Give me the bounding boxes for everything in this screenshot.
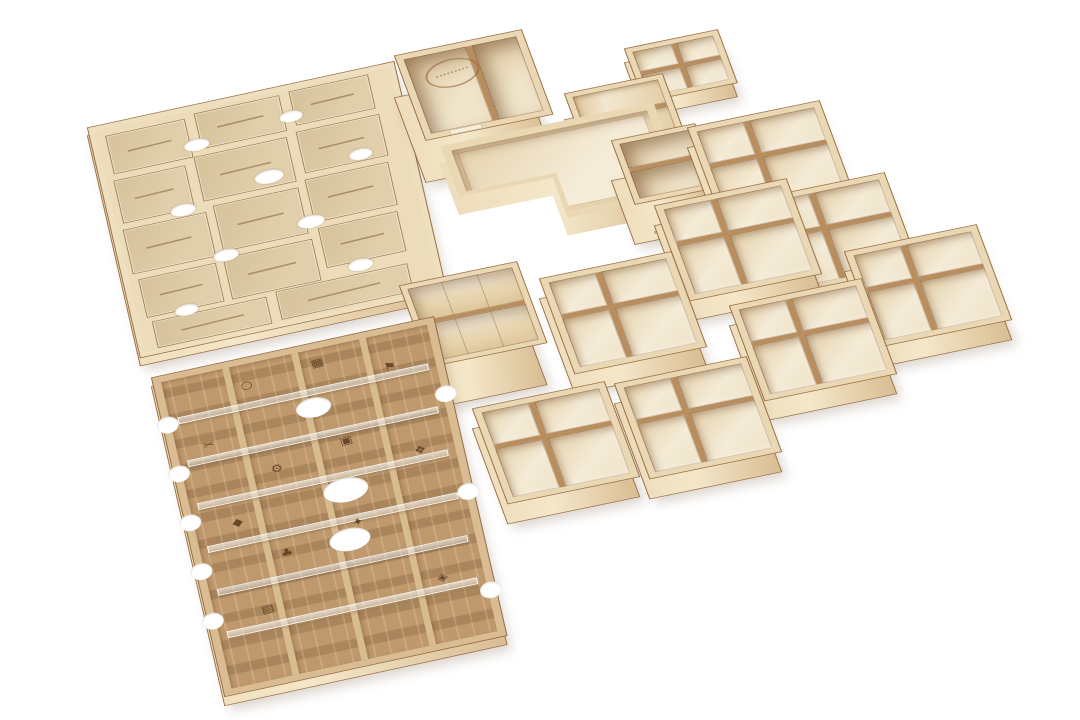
product-photo: ○ ▦ ✂ ⚑ ⚙ ▣ ◆ ❖ ♣ ✦ ▤ ◈ bbox=[0, 0, 1080, 720]
tray-compartment bbox=[495, 439, 560, 497]
tray-compartment bbox=[549, 273, 608, 315]
tray-compartment bbox=[624, 378, 683, 420]
tray-compartment bbox=[685, 59, 730, 87]
tray-compartment bbox=[690, 400, 773, 462]
gear-icon: ⚙ bbox=[269, 462, 284, 475]
chest-icon: ▤ bbox=[259, 602, 275, 616]
tray-compartment bbox=[637, 414, 702, 472]
droplet-icon: ❖ bbox=[413, 444, 428, 457]
tray-compartment bbox=[805, 322, 888, 384]
engraved-room bbox=[106, 120, 192, 174]
tray-compartment bbox=[632, 44, 678, 72]
engraved-room bbox=[306, 163, 397, 222]
engraved-room bbox=[297, 115, 388, 173]
tray-compartment bbox=[615, 295, 698, 357]
tray-compartment bbox=[676, 35, 720, 62]
tray-compartment bbox=[677, 236, 742, 294]
tray-compartment bbox=[697, 122, 756, 164]
engraved-room bbox=[124, 213, 215, 274]
tray-compartment bbox=[752, 336, 817, 394]
tray-compartment bbox=[548, 425, 631, 487]
tray-compartment bbox=[664, 200, 723, 242]
tray-compartment bbox=[920, 268, 1003, 330]
tray-compartment bbox=[739, 300, 798, 342]
tray-compartment bbox=[562, 309, 627, 367]
frame-icon: ▣ bbox=[338, 434, 354, 448]
tray-compartment bbox=[730, 222, 813, 284]
engraved-room bbox=[214, 188, 308, 250]
tray-compartment bbox=[482, 403, 541, 445]
ring-icon: ○ bbox=[239, 379, 254, 392]
labels-board-top bbox=[88, 62, 446, 358]
tray-compartment bbox=[854, 246, 913, 288]
